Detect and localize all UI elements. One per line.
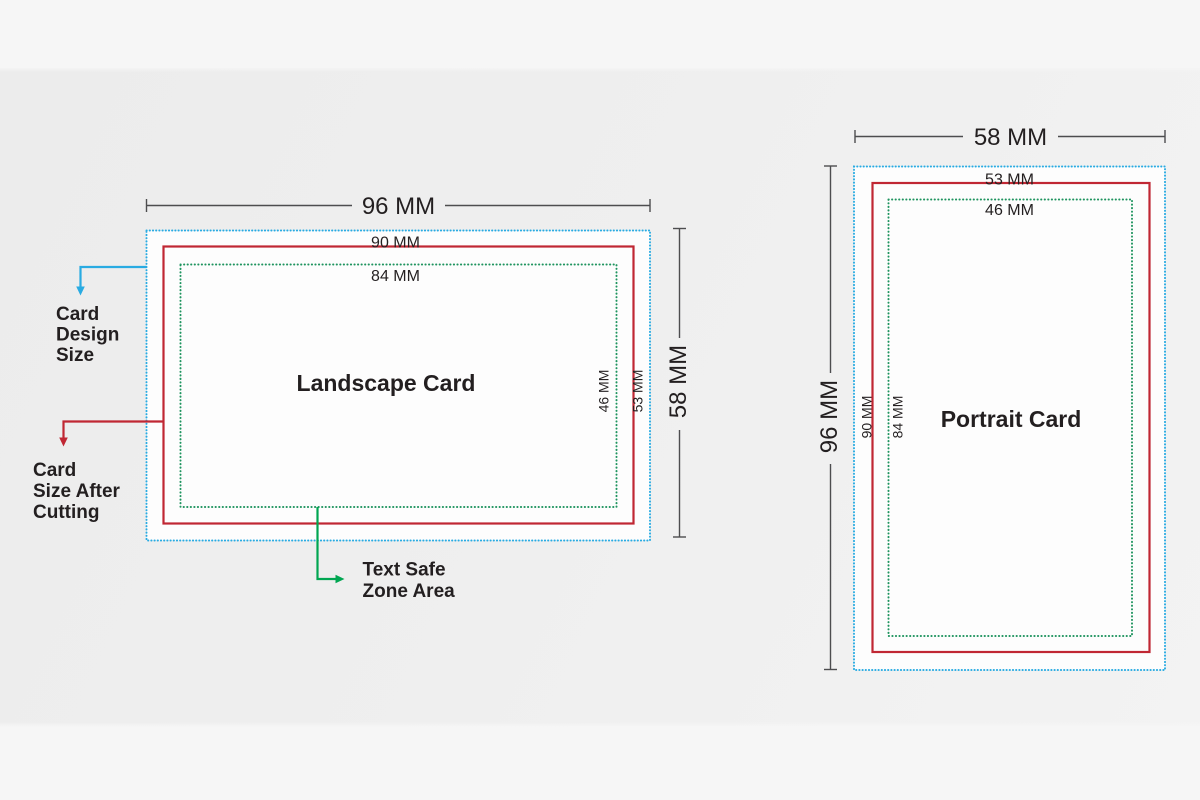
svg-text:84 MM: 84 MM [889,396,905,439]
svg-text:58 MM: 58 MM [974,124,1047,151]
svg-text:53 MM: 53 MM [629,370,645,413]
svg-text:90 MM: 90 MM [371,235,420,252]
svg-text:96 MM: 96 MM [816,380,843,453]
svg-text:58 MM: 58 MM [665,345,692,418]
svg-text:53 MM: 53 MM [985,172,1034,189]
svg-text:96 MM: 96 MM [362,193,435,220]
svg-text:CardDesignSize: CardDesignSize [56,304,119,366]
svg-text:Landscape Card: Landscape Card [297,370,476,396]
svg-text:Portrait Card: Portrait Card [941,406,1082,432]
svg-text:84 MM: 84 MM [371,268,420,285]
svg-text:46 MM: 46 MM [595,370,611,413]
svg-text:CardSize AfterCutting: CardSize AfterCutting [33,460,121,523]
svg-text:46 MM: 46 MM [985,202,1034,219]
svg-text:90 MM: 90 MM [858,396,874,439]
svg-text:Text SafeZone Area: Text SafeZone Area [363,560,456,603]
